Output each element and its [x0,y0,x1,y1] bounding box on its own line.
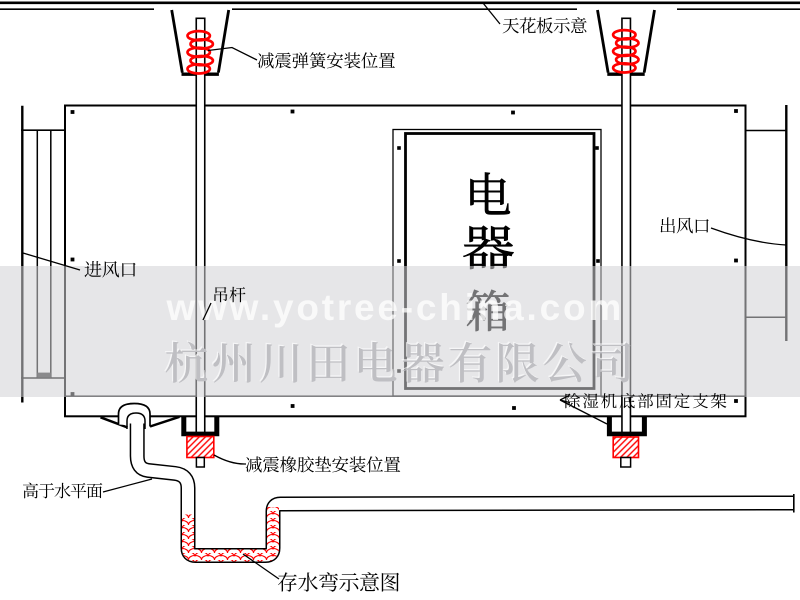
svg-text:www.yotree-china.com: www.yotree-china.com [166,287,625,328]
